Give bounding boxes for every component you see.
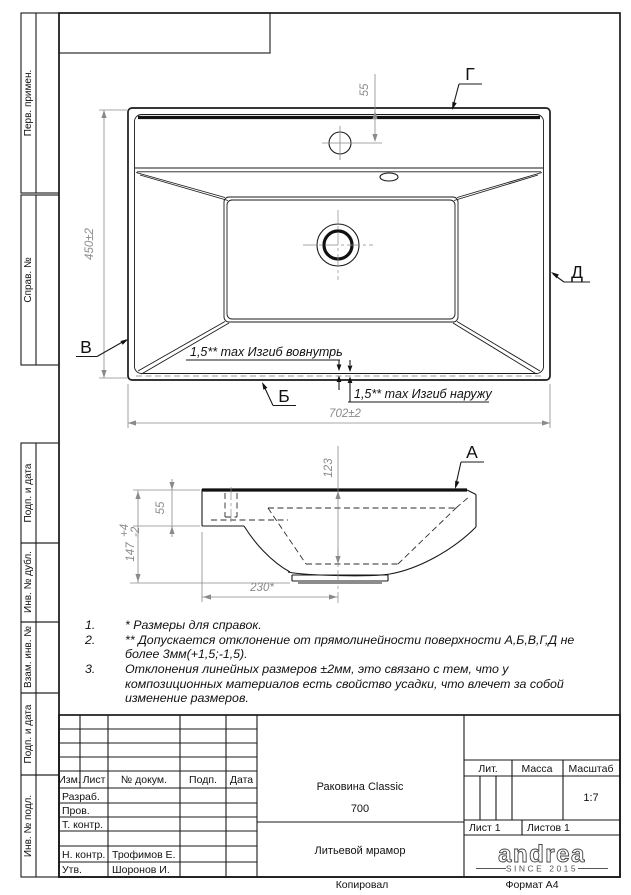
strip-label-inv-dubl: Инв. № дубл.	[22, 551, 34, 613]
name-utv: Шоронов И.	[112, 864, 170, 876]
overflow-slot	[380, 173, 398, 181]
row-tkontr: Т. контр.	[62, 819, 103, 831]
surface-label-g: Г	[452, 64, 482, 110]
copied-label: Копировал	[336, 879, 389, 891]
callout-bend-outward: 1,5** max Изгиб наружу	[348, 360, 493, 402]
lit-label: Лит.	[478, 763, 497, 775]
doc-title-line1: Раковина Classic	[317, 781, 404, 793]
format-label: Формат А4	[505, 879, 558, 891]
drain-foot	[292, 575, 388, 583]
dimension-123: 123	[323, 446, 341, 565]
note-number: 3.	[85, 662, 125, 706]
dim-deck-text: 55	[155, 501, 167, 514]
note-2: 2. ** Допускается отклонение от прямолин…	[85, 633, 593, 662]
row-utv: Утв.	[62, 864, 82, 876]
material: Литьевой мрамор	[315, 845, 406, 857]
scale-value: 1:7	[583, 792, 598, 804]
scale-label: Масштаб	[569, 763, 614, 775]
drain-hole	[303, 210, 373, 280]
col-podp: Подп.	[189, 774, 217, 786]
svg-text:Д: Д	[571, 262, 583, 282]
col-izm: Изм.	[58, 774, 81, 786]
row-nkontr: Н. контр.	[62, 849, 105, 861]
row-razrab: Разраб.	[62, 791, 100, 803]
dim-width-text: 702±2	[329, 408, 361, 420]
strip-label-vzam-inv: Взам. инв. №	[23, 626, 34, 688]
strip-label-perv-primen: Перв. примен.	[23, 70, 34, 136]
note-text: Отклонения линейных размеров ±2мм, это с…	[125, 662, 593, 706]
top-stamp-box	[59, 13, 270, 53]
dimension-55-deck: 55	[133, 479, 200, 537]
svg-text:В: В	[80, 337, 92, 357]
dimension-147: 147 +4 -2	[119, 490, 290, 583]
dim-total-text: 147	[125, 542, 137, 562]
svg-text:А: А	[466, 442, 478, 462]
svg-text:Б: Б	[278, 386, 289, 406]
callout-bend-inward: 1,5** max Изгиб вовнутрь	[186, 345, 343, 390]
strip-label-podp-data-1: Подп. и дата	[23, 463, 34, 522]
dimension-230: 230*	[202, 532, 338, 602]
row-prov: Пров.	[62, 805, 90, 817]
hidden-cavity-lines	[211, 493, 470, 564]
strip-label-sprav: Справ. №	[23, 257, 34, 303]
title-block: Изм. Лист № докум. Подп. Дата Разраб. Пр…	[58, 715, 620, 877]
note-3: 3. Отклонения линейных размеров ±2мм, эт…	[85, 662, 593, 706]
side-view: 123 55 147 +4 -2 230* А	[119, 442, 484, 603]
doc-title-line2: 700	[351, 803, 369, 815]
logo-subtext: SINCE 2015	[506, 864, 578, 874]
sheet-drawing-svg: Перв. примен. Справ. № Подп. и дата Инв.…	[0, 0, 631, 895]
dim-faucet-text: 55	[359, 83, 371, 96]
name-nkontr: Трофимов Е.	[112, 849, 175, 861]
col-data: Дата	[230, 774, 253, 786]
note-text: ** Допускается отклонение от прямолинейн…	[125, 633, 593, 662]
sheets-total: Листов 1	[527, 822, 570, 834]
dim-depth-text: 123	[323, 458, 335, 478]
strip-label-podp-data-2: Подп. и дата	[23, 704, 34, 763]
svg-text:1,5** max Изгиб вовнутрь: 1,5** max Изгиб вовнутрь	[190, 345, 343, 359]
mass-label: Масса	[521, 763, 552, 775]
strip-label-inv-podl: Инв. № подл.	[23, 795, 34, 857]
drawing-sheet: Перв. примен. Справ. № Подп. и дата Инв.…	[0, 0, 631, 895]
note-number: 1.	[85, 618, 125, 633]
note-1: 1. * Размеры для справок.	[85, 618, 593, 633]
sheet-number: Лист 1	[469, 822, 501, 834]
dim-total-tol-dn: -2	[130, 526, 142, 537]
svg-text:1,5** max Изгиб наружу: 1,5** max Изгиб наружу	[354, 387, 493, 401]
plan-view: 450±2 702±2 55 Г Д В	[76, 64, 590, 428]
note-number: 2.	[85, 633, 125, 662]
brand-logo: andrea SINCE 2015	[476, 841, 608, 874]
col-list: Лист	[83, 774, 106, 786]
surface-label-a: А	[455, 442, 484, 489]
dim-height-text: 450±2	[84, 227, 96, 259]
dim-drain-text: 230*	[249, 582, 274, 594]
surface-label-d: Д	[551, 262, 590, 282]
surface-label-b: Б	[262, 382, 296, 406]
col-dokum: № докум.	[121, 774, 167, 786]
surface-label-v: В	[76, 337, 129, 357]
faucet-hole	[322, 126, 382, 160]
left-strip: Перв. примен. Справ. № Подп. и дата Инв.…	[21, 13, 59, 877]
technical-notes: 1. * Размеры для справок. 2. ** Допускае…	[85, 618, 593, 706]
note-text: * Размеры для справок.	[125, 618, 593, 633]
svg-text:Г: Г	[465, 64, 475, 84]
